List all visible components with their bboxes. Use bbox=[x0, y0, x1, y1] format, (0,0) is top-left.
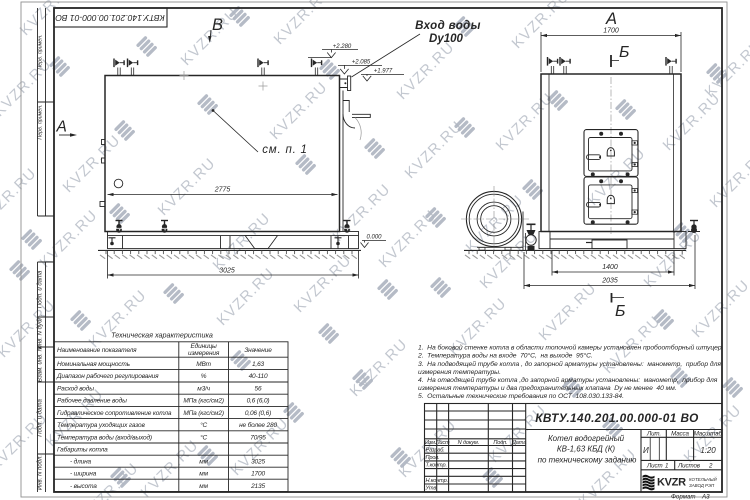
svg-text:56: 56 bbox=[255, 386, 262, 393]
svg-text:см. п. 1: см. п. 1 bbox=[262, 144, 308, 156]
svg-text:Листов: Листов bbox=[677, 463, 701, 470]
svg-text:мм: мм bbox=[199, 471, 208, 478]
svg-text:1700: 1700 bbox=[251, 471, 265, 478]
svg-text:Номинальная мощность: Номинальная мощность bbox=[57, 361, 131, 368]
svg-text:0.000: 0.000 bbox=[366, 235, 382, 241]
svg-text:А: А bbox=[56, 119, 67, 136]
svg-text:Dу100: Dу100 bbox=[429, 33, 463, 45]
svg-text:А3: А3 bbox=[701, 494, 710, 500]
svg-text:КВ-1,63 КБД (К): КВ-1,63 КБД (К) bbox=[557, 445, 615, 454]
svg-text:KVZR: KVZR bbox=[657, 477, 686, 489]
svg-text:1400: 1400 bbox=[602, 264, 618, 271]
svg-text:KVZR.RU: KVZR.RU bbox=[689, 277, 750, 342]
svg-text:МПа (кгс/см2): МПа (кгс/см2) bbox=[183, 398, 224, 405]
svg-text:Разраб.: Разраб. bbox=[426, 448, 445, 454]
svg-text:МВт: МВт bbox=[196, 361, 211, 368]
svg-text:KVZR.RU: KVZR.RU bbox=[376, 207, 441, 272]
svg-text:Лист: Лист bbox=[646, 463, 663, 470]
svg-text:%: % bbox=[201, 373, 207, 380]
svg-text:Инв. N дубл.: Инв. N дубл. bbox=[38, 315, 44, 350]
svg-text:В: В bbox=[212, 16, 223, 34]
svg-text:И: И bbox=[643, 446, 649, 455]
svg-text:Инв. N подл.: Инв. N подл. bbox=[38, 455, 44, 490]
svg-text:Диапазон рабочего регулировани: Диапазон рабочего регулирования bbox=[56, 372, 159, 380]
svg-text:- длина: - длина bbox=[70, 458, 92, 466]
svg-text:KVZR.RU: KVZR.RU bbox=[138, 437, 203, 500]
svg-text:Н.контр.: Н.контр. bbox=[426, 478, 449, 484]
svg-text:5. Остальные технические треб: 5. Остальные технические требования по О… bbox=[418, 392, 624, 400]
svg-text:Габариты котла: Габариты котла bbox=[57, 446, 108, 454]
svg-text:KVZR.RU: KVZR.RU bbox=[291, 252, 356, 317]
svg-text:Единицы: Единицы bbox=[191, 342, 218, 350]
svg-text:Подп.: Подп. bbox=[493, 440, 507, 446]
svg-text:1: 1 bbox=[665, 463, 668, 470]
svg-text:KVZR.RU: KVZR.RU bbox=[660, 90, 725, 155]
svg-text:Температура уходящих газов: Температура уходящих газов bbox=[57, 421, 145, 429]
svg-text:KVZR.RU: KVZR.RU bbox=[402, 118, 467, 183]
svg-text:0,6 (6,0): 0,6 (6,0) bbox=[247, 398, 270, 405]
svg-text:КВТУ.140.201.00.000-01 ВО: КВТУ.140.201.00.000-01 ВО bbox=[55, 13, 165, 23]
svg-text:40-110: 40-110 bbox=[249, 373, 268, 380]
svg-text:МПа (кгс/см2): МПа (кгс/см2) bbox=[183, 410, 224, 417]
svg-text:Рабочее давление воды: Рабочее давление воды bbox=[57, 397, 127, 405]
svg-text:2775: 2775 bbox=[214, 187, 231, 194]
svg-text:м3/ч: м3/ч bbox=[197, 386, 210, 393]
svg-text:KVZR.RU: KVZR.RU bbox=[210, 210, 275, 275]
svg-text:KVZR.RU: KVZR.RU bbox=[493, 90, 558, 155]
svg-text:1. На боковой стенке котла в: 1. На боковой стенке котла в области топ… bbox=[418, 344, 722, 352]
svg-text:Пров.: Пров. bbox=[426, 455, 440, 461]
svg-text:N докум.: N докум. bbox=[458, 440, 479, 446]
svg-text:Формат: Формат bbox=[671, 494, 696, 500]
svg-text:Б: Б bbox=[615, 303, 625, 320]
svg-text:КОТЕЛЬНЫЙ: КОТЕЛЬНЫЙ bbox=[689, 477, 717, 482]
svg-text:КВТУ.140.201.00.000-01 ВО: КВТУ.140.201.00.000-01 ВО bbox=[535, 411, 699, 425]
svg-text:Б: Б bbox=[619, 44, 629, 61]
svg-text:мм: мм bbox=[199, 483, 208, 490]
svg-text:KVZR.RU: KVZR.RU bbox=[536, 280, 601, 345]
svg-text:Масса: Масса bbox=[671, 431, 689, 438]
svg-text:KVZR.RU: KVZR.RU bbox=[267, 79, 332, 144]
svg-text:4. На отводящей трубе котла ,: 4. На отводящей трубе котла ,до запорной… bbox=[418, 376, 718, 384]
svg-text:KVZR.RU: KVZR.RU bbox=[394, 39, 459, 104]
svg-text:- высота: - высота bbox=[70, 483, 97, 490]
svg-text:KVZR.RU: KVZR.RU bbox=[78, 460, 143, 500]
svg-text:Значение: Значение bbox=[244, 347, 272, 354]
svg-text:Перв. примен.: Перв. примен. bbox=[38, 104, 44, 139]
svg-text:KVZR.RU: KVZR.RU bbox=[0, 165, 40, 230]
svg-text:Температура воды (вход/выход): Температура воды (вход/выход) bbox=[57, 433, 152, 441]
svg-text:Дата: Дата bbox=[511, 440, 526, 446]
svg-text:Подп. и дата: Подп. и дата bbox=[38, 270, 44, 308]
svg-text:3025: 3025 bbox=[251, 459, 265, 466]
svg-text:Масштаб: Масштаб bbox=[694, 431, 723, 438]
svg-text:Перв. примен.: Перв. примен. bbox=[38, 34, 44, 69]
svg-text:1700: 1700 bbox=[603, 28, 619, 35]
svg-text:Лист: Лист bbox=[435, 440, 450, 446]
svg-text:измерения температуры и два пр: измерения температуры и два предохраните… bbox=[418, 384, 677, 392]
svg-text:Расход воды: Расход воды bbox=[57, 385, 94, 393]
svg-text:измерения температуры.: измерения температуры. bbox=[418, 369, 501, 376]
svg-text:Подп. и дата: Подп. и дата bbox=[38, 399, 44, 437]
svg-text:Техническая характеристика: Техническая характеристика bbox=[111, 331, 213, 340]
svg-text:KVZR.RU: KVZR.RU bbox=[347, 336, 412, 401]
svg-text:Т.контр.: Т.контр. bbox=[426, 463, 447, 469]
svg-text:2035: 2035 bbox=[601, 278, 618, 285]
svg-text:А: А bbox=[605, 10, 617, 28]
svg-text:1,63: 1,63 bbox=[252, 361, 265, 368]
svg-text:ЗАВОД РЭП: ЗАВОД РЭП bbox=[689, 483, 715, 488]
svg-text:KVZR.RU: KVZR.RU bbox=[707, 147, 750, 212]
svg-text:+1.977: +1.977 bbox=[374, 69, 393, 75]
svg-text:2135: 2135 bbox=[250, 483, 265, 490]
svg-text:Изм.: Изм. bbox=[425, 440, 436, 446]
svg-text:KVZR.RU: KVZR.RU bbox=[60, 132, 125, 197]
svg-text:3. На подводящей трубе котла: 3. На подводящей трубе котла , до запорн… bbox=[418, 360, 721, 368]
svg-text:Вход воды: Вход воды bbox=[415, 20, 481, 32]
svg-text:2. Температура воды на входе: 2. Температура воды на входе 70°С, на вы… bbox=[417, 352, 593, 360]
svg-text:°С: °С bbox=[200, 433, 207, 441]
svg-text:не более 280: не более 280 bbox=[239, 421, 277, 429]
svg-text:+2.085: +2.085 bbox=[352, 60, 371, 66]
svg-text:KVZR.RU: KVZR.RU bbox=[0, 297, 59, 362]
svg-text:мм: мм bbox=[199, 459, 208, 466]
svg-text:0,06 (0,6): 0,06 (0,6) bbox=[245, 410, 271, 417]
svg-text:KVZR.RU: KVZR.RU bbox=[0, 56, 55, 121]
svg-text:70/95: 70/95 bbox=[250, 434, 266, 441]
svg-text:Взам. инв. N: Взам. инв. N bbox=[38, 346, 44, 382]
svg-text:Наименование показателя: Наименование показателя bbox=[57, 347, 137, 354]
svg-text:1:20: 1:20 bbox=[700, 446, 716, 455]
svg-text:+2.280: +2.280 bbox=[333, 44, 352, 50]
svg-text:KVZR.RU: KVZR.RU bbox=[155, 155, 220, 220]
svg-text:2: 2 bbox=[708, 463, 713, 470]
svg-text:°С: °С bbox=[200, 421, 207, 429]
svg-text:Лит.: Лит. bbox=[646, 431, 661, 438]
svg-text:измерения: измерения bbox=[188, 350, 220, 357]
svg-text:Гидравлическое сопротивление к: Гидравлическое сопротивление котла bbox=[57, 409, 172, 417]
svg-text:- ширина: - ширина bbox=[70, 471, 97, 478]
svg-text:KVZR.RU: KVZR.RU bbox=[641, 227, 706, 292]
svg-text:по техническому заданию: по техническому заданию bbox=[538, 456, 637, 465]
svg-text:3025: 3025 bbox=[219, 268, 235, 275]
svg-text:Котел водогрейный: Котел водогрейный bbox=[548, 434, 625, 443]
svg-text:Утв.: Утв. bbox=[425, 486, 438, 492]
